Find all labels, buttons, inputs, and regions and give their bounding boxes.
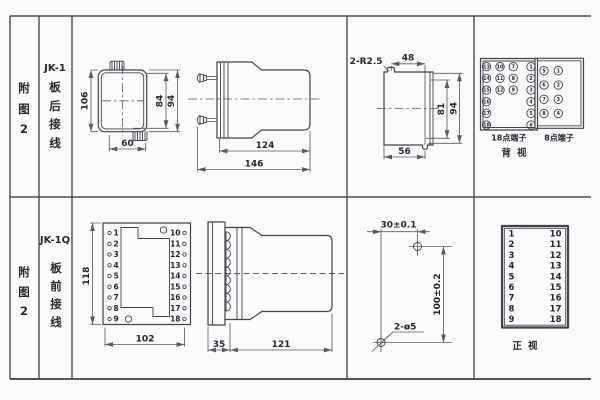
plate-terminal: 14: [170, 272, 180, 281]
drill-pattern-drawing: 30±0.1 100±0.2 2-ø5: [367, 221, 452, 353]
front-view-terminal-table: 1 2 3 4 5 6 7 8 9 10 11 12 13 14 15 16 1…: [502, 226, 568, 352]
front-terminal: 10: [550, 230, 562, 240]
dim-label-121: 121: [272, 340, 291, 350]
terminal-number: 12: [497, 88, 504, 94]
terminal-number: 16: [483, 99, 490, 105]
front-terminal: 18: [550, 315, 562, 325]
dim-label-35: 35: [213, 340, 226, 350]
row1-figure-caption: 附 图 2: [18, 81, 30, 136]
terminal-number: 5: [529, 111, 532, 117]
model-label: JK-1Q: [39, 235, 70, 246]
dim-label-94-cutout: 94: [449, 102, 459, 115]
wiring-char: 线: [50, 315, 62, 329]
front-view-label: 正视: [512, 340, 543, 352]
terminal-col-1-4: 1 2 3 4: [554, 67, 562, 118]
terminal-number: 8: [542, 111, 546, 117]
terminal-number: 7: [542, 97, 545, 103]
terminal-number: 8: [512, 76, 516, 82]
dim-label-94: 94: [167, 95, 177, 108]
terminal-number: 1: [557, 68, 560, 74]
plate-terminal: 9: [114, 315, 119, 324]
wiring-char: 线: [49, 136, 61, 150]
front-terminal: 2: [509, 240, 515, 250]
mounting-screw-bottom: [197, 115, 217, 124]
wiring-char: 接: [50, 297, 62, 311]
dim-label-48: 48: [402, 54, 415, 64]
plate-terminal: 12: [170, 250, 180, 259]
figure-char: 图: [18, 102, 30, 116]
terminal-number: 11: [497, 76, 504, 82]
terminal-number: 14: [483, 76, 490, 82]
dim-label-146: 146: [245, 160, 264, 170]
front-terminal: 11: [550, 240, 562, 250]
front-terminal: 5: [509, 272, 515, 282]
dim-label-81: 81: [437, 103, 447, 116]
model-label: JK-1: [43, 63, 66, 74]
terminal-col-13-18: 13 14 15 16 17 18: [482, 62, 490, 129]
plate-terminal: 3: [114, 250, 119, 259]
terminal-col-7-9: 7 8 9: [509, 62, 517, 94]
callout-2-o5: 2-ø5: [394, 323, 416, 333]
dim-label-56: 56: [398, 147, 411, 157]
plate-terminal: 17: [170, 304, 180, 313]
mounting-hole-top: [160, 227, 166, 233]
plate-terminal: 10: [170, 229, 180, 238]
plate-terminal: 18: [170, 315, 180, 324]
plate-terminal: 5: [114, 272, 119, 281]
terminal-number: 15: [483, 88, 490, 94]
plate-terminal: 1: [114, 229, 119, 238]
terminal-number: 9: [512, 88, 516, 94]
jk1q-plate-drawing: 1 2 3 4 5 6 7 8 9 10 11 12 13 14 15 16 1…: [82, 223, 191, 347]
terminal-number: 2: [529, 76, 532, 82]
terminal-number: 17: [483, 111, 490, 117]
screw-terminal-top: [110, 61, 124, 70]
wiring-char: 接: [49, 117, 61, 131]
dim-label-60: 60: [121, 139, 134, 149]
wiring-char: 前: [50, 279, 62, 293]
dim-label-30: 30±0.1: [380, 221, 416, 231]
front-terminal: 16: [550, 294, 562, 304]
terminal-number: 7: [512, 64, 515, 70]
terminal-block-18: 13 14 15 16 17 18 10 11 12 7 8 9 1 2 3 4…: [481, 59, 538, 143]
screw-terminal-bottom: [133, 132, 147, 141]
dim-label-106: 106: [81, 92, 91, 111]
figure-char: 附: [18, 81, 30, 95]
terminal-number: 13: [483, 64, 490, 70]
terminal-number: 3: [557, 97, 560, 103]
front-terminal: 3: [509, 251, 515, 261]
plate-terminals-right: 10 11 12 13 14 15 16 17 18: [170, 229, 186, 324]
terminal-number: 6: [542, 83, 546, 89]
wiring-char: 板: [49, 80, 61, 94]
front-table-right-column: 10 11 12 13 14 15 16 17 18: [550, 230, 562, 326]
block18-label: 18点端子: [491, 132, 526, 142]
dim-label-124: 124: [256, 141, 275, 151]
wiring-char: 板: [50, 261, 62, 275]
plate-terminal: 2: [114, 240, 119, 249]
jk1-front-view-drawing: 106 84 94 60: [81, 61, 181, 151]
wiring-char: 后: [49, 99, 61, 113]
callout-2-r2.5: 2-R2.5: [350, 57, 383, 67]
jk1-side-view-drawing: 124 146: [188, 62, 320, 172]
row1-model-caption: JK-1 板 后 接 线: [43, 63, 66, 150]
front-terminal: 12: [550, 251, 562, 261]
dim-label-100: 100±0.2: [433, 273, 443, 315]
plate-terminals-left: 1 2 3 4 5 6 7 8 9: [108, 229, 119, 324]
jk1-panel-cutout-drawing: 2-R2.5 48 81 94 56: [350, 54, 463, 160]
plate-terminal: 13: [170, 261, 180, 270]
front-terminal: 15: [550, 283, 562, 293]
back-view-label: 背视: [501, 147, 532, 159]
dim-label-118: 118: [82, 267, 92, 286]
front-terminal: 1: [509, 230, 515, 240]
terminal-number: 10: [497, 64, 504, 70]
plate-terminal: 8: [114, 304, 119, 313]
plate-terminal: 6: [114, 283, 119, 292]
front-terminal: 9: [509, 315, 515, 325]
figure-char: 图: [18, 285, 30, 299]
terminal-number: 18: [483, 123, 490, 129]
plate-terminal: 7: [114, 293, 119, 302]
terminal-col-10-12: 10 11 12: [496, 62, 504, 94]
terminal-number: 4: [529, 99, 533, 105]
plate-terminal: 11: [170, 240, 180, 249]
terminal-bumps: [226, 232, 230, 311]
row2-model-caption: JK-1Q 板 前 接 线: [39, 235, 70, 329]
dim-label-102: 102: [136, 335, 155, 345]
front-terminal: 4: [509, 262, 515, 272]
mounting-screw-top: [197, 73, 217, 82]
front-terminal: 14: [550, 272, 562, 282]
figure-char: 2: [20, 304, 28, 318]
front-terminal: 6: [509, 283, 515, 293]
terminal-col-1-6: 1 2 3 4 5 6: [527, 62, 535, 129]
terminal-block-8: 5 6 7 8 1 2 3 4 8点端子: [535, 58, 584, 142]
terminal-number: 1: [529, 64, 532, 70]
jk1q-side-view-drawing: 35 121: [196, 222, 344, 352]
front-terminal: 17: [550, 304, 562, 314]
row2-figure-caption: 附 图 2: [18, 265, 30, 318]
front-terminal: 7: [509, 294, 515, 304]
drawing-canvas: 附 图 2 JK-1 板 后 接 线 106 84: [0, 0, 600, 400]
terminal-number: 4: [557, 111, 561, 117]
terminal-number: 2: [557, 83, 560, 89]
terminal-col-5-8: 5 6 7 8: [540, 67, 548, 118]
plate-terminal: 4: [114, 261, 119, 270]
terminal-number: 3: [529, 88, 532, 94]
front-terminal: 13: [550, 262, 562, 272]
figure-char: 2: [20, 122, 28, 136]
mounting-hole-bottom: [125, 316, 131, 322]
relay-dimension-sheet: 附 图 2 JK-1 板 后 接 线 106 84: [0, 0, 600, 400]
block8-label: 8点端子: [544, 132, 574, 142]
front-terminal: 8: [509, 304, 515, 314]
terminal-number: 5: [542, 68, 545, 74]
figure-char: 附: [18, 265, 30, 279]
plate-terminal: 16: [170, 293, 180, 302]
dim-label-84: 84: [156, 95, 166, 108]
plate-terminal: 15: [170, 283, 180, 292]
front-table-left-column: 1 2 3 4 5 6 7 8 9: [509, 230, 515, 326]
